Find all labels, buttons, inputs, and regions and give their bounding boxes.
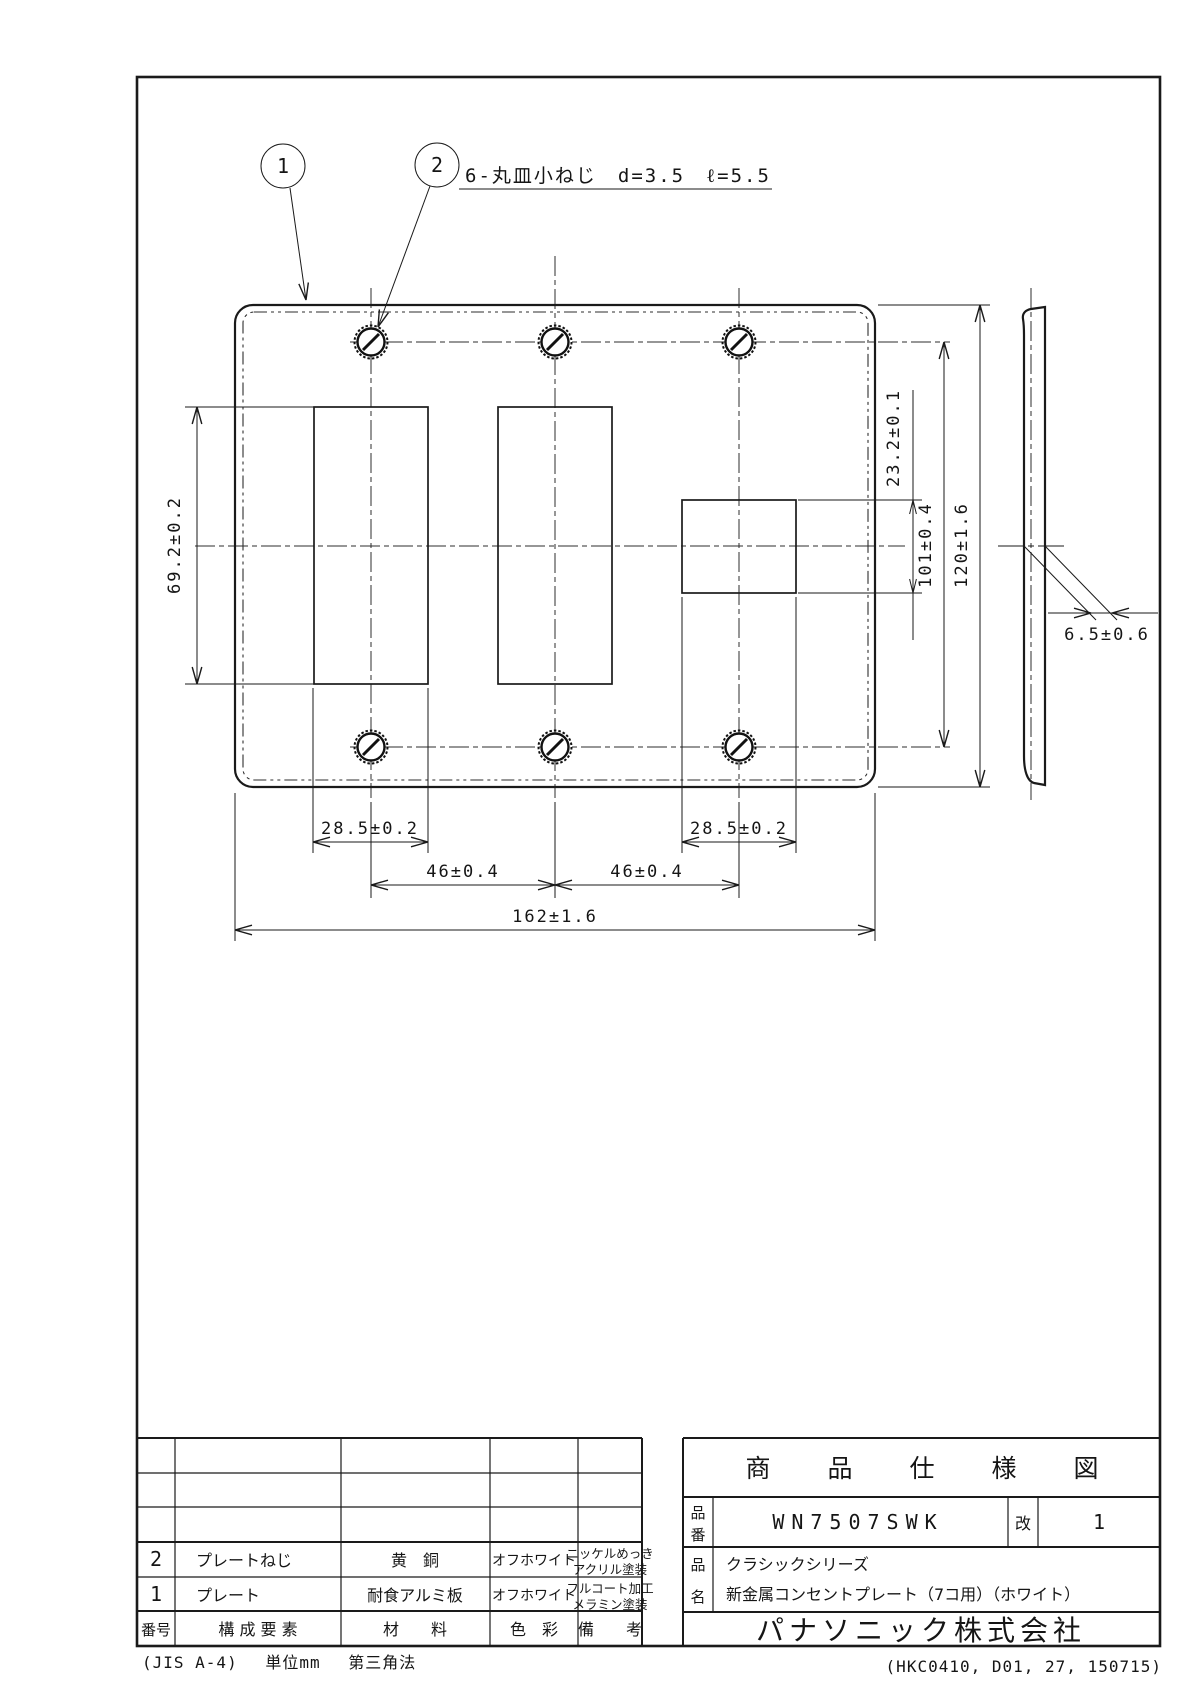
screw-bottom-right xyxy=(723,731,756,764)
part-row-material: 耐食アルミ板 xyxy=(367,1586,463,1605)
thickness-leader-1 xyxy=(1024,546,1096,620)
dim-opening-width-left: 28.5±0.2 xyxy=(321,819,419,839)
callout-1-leader xyxy=(290,188,306,300)
part-row-remarks-1: ニッケルめっき xyxy=(566,1546,654,1561)
screw-top-left xyxy=(355,326,388,359)
callouts: 1 2 6-丸皿小ねじ d=3.5 ℓ=5.5 xyxy=(261,143,772,327)
product-block: 商 品 仕 様 図 品 番 WN7507SWK 改 1 品 名 クラシックシリー… xyxy=(683,1438,1160,1647)
part-no-label-char2: 番 xyxy=(690,1526,705,1544)
screw-top-center xyxy=(539,326,572,359)
screw-top-right xyxy=(723,326,756,359)
spec-sheet-page: 1 2 6-丸皿小ねじ d=3.5 ℓ=5.5 69.2±0.2 23.2±0.… xyxy=(0,0,1196,1690)
dim-screw-pitch-left: 46±0.4 xyxy=(426,862,499,882)
part-row-remarks-2: アクリル塗装 xyxy=(573,1562,647,1577)
revision-value: 1 xyxy=(1093,1510,1105,1534)
dim-thickness: 6.5±0.6 xyxy=(1064,625,1150,645)
parts-header-material: 材 料 xyxy=(383,1620,447,1639)
screw-bottom-center xyxy=(539,731,572,764)
part-row-color: オフホワイト xyxy=(492,1588,576,1604)
product-name-label-char1: 品 xyxy=(690,1556,705,1574)
revision-label: 改 xyxy=(1015,1514,1031,1533)
title-block: 2 プレートねじ 黄 銅 オフホワイト ニッケルめっき アクリル塗装 1 プレー… xyxy=(137,1438,1160,1647)
dim-plate-height: 120±1.6 xyxy=(952,502,972,588)
dim-screw-pitch-right: 46±0.4 xyxy=(610,862,683,882)
company-name: パナソニック株式会社 xyxy=(756,1614,1086,1647)
screw-bottom-left xyxy=(355,731,388,764)
product-name-label-char2: 名 xyxy=(690,1588,705,1606)
parts-table: 2 プレートねじ 黄 銅 オフホワイト ニッケルめっき アクリル塗装 1 プレー… xyxy=(137,1438,654,1646)
footer-right-note: (HKC0410, D01, 27, 150715) xyxy=(886,1657,1162,1676)
dim-square-height: 23.2±0.1 xyxy=(884,389,904,487)
parts-header-no: 番号 xyxy=(141,1621,171,1639)
part-row-material: 黄 銅 xyxy=(391,1551,439,1570)
document-title: 商 品 仕 様 図 xyxy=(745,1454,1114,1483)
part-no-label-char1: 品 xyxy=(690,1504,705,1522)
screw-note-text: 6-丸皿小ねじ d=3.5 ℓ=5.5 xyxy=(465,165,771,187)
callout-1-number: 1 xyxy=(277,154,289,178)
dim-opening-height: 69.2±0.2 xyxy=(165,496,185,594)
dim-plate-width: 162±1.6 xyxy=(512,907,598,927)
footer-left-note: (JIS A-4) 単位mm 第三角法 xyxy=(142,1653,416,1672)
product-series: クラシックシリーズ xyxy=(726,1555,869,1574)
part-row-component: プレートねじ xyxy=(196,1551,292,1570)
drawing-canvas: 1 2 6-丸皿小ねじ d=3.5 ℓ=5.5 69.2±0.2 23.2±0.… xyxy=(0,0,1196,1690)
part-number: WN7507SWK xyxy=(772,1510,943,1534)
part-row-remarks-1: フルコート加工 xyxy=(566,1581,653,1596)
part-row-no: 2 xyxy=(150,1547,162,1571)
part-row-color: オフホワイト xyxy=(492,1553,576,1569)
part-row-remarks-2: メラミン塗装 xyxy=(572,1597,647,1612)
dimensions: 69.2±0.2 23.2±0.1 101±0.4 120±1.6 28.5±0… xyxy=(165,305,990,941)
product-name: 新金属コンセントプレート（7コ用）（ホワイト） xyxy=(726,1585,1080,1604)
dim-screw-row-pitch: 101±0.4 xyxy=(916,502,936,588)
parts-header-color: 色 彩 xyxy=(510,1620,558,1639)
front-view xyxy=(195,256,950,798)
side-view: 6.5±0.6 xyxy=(998,288,1158,800)
parts-header-remarks: 備 考 xyxy=(578,1620,642,1639)
part-row-no: 1 xyxy=(150,1582,162,1606)
parts-header-component: 構 成 要 素 xyxy=(218,1620,297,1639)
thickness-leader-2 xyxy=(1045,546,1117,620)
part-row-component: プレート xyxy=(196,1586,260,1605)
callout-2-number: 2 xyxy=(431,153,443,177)
